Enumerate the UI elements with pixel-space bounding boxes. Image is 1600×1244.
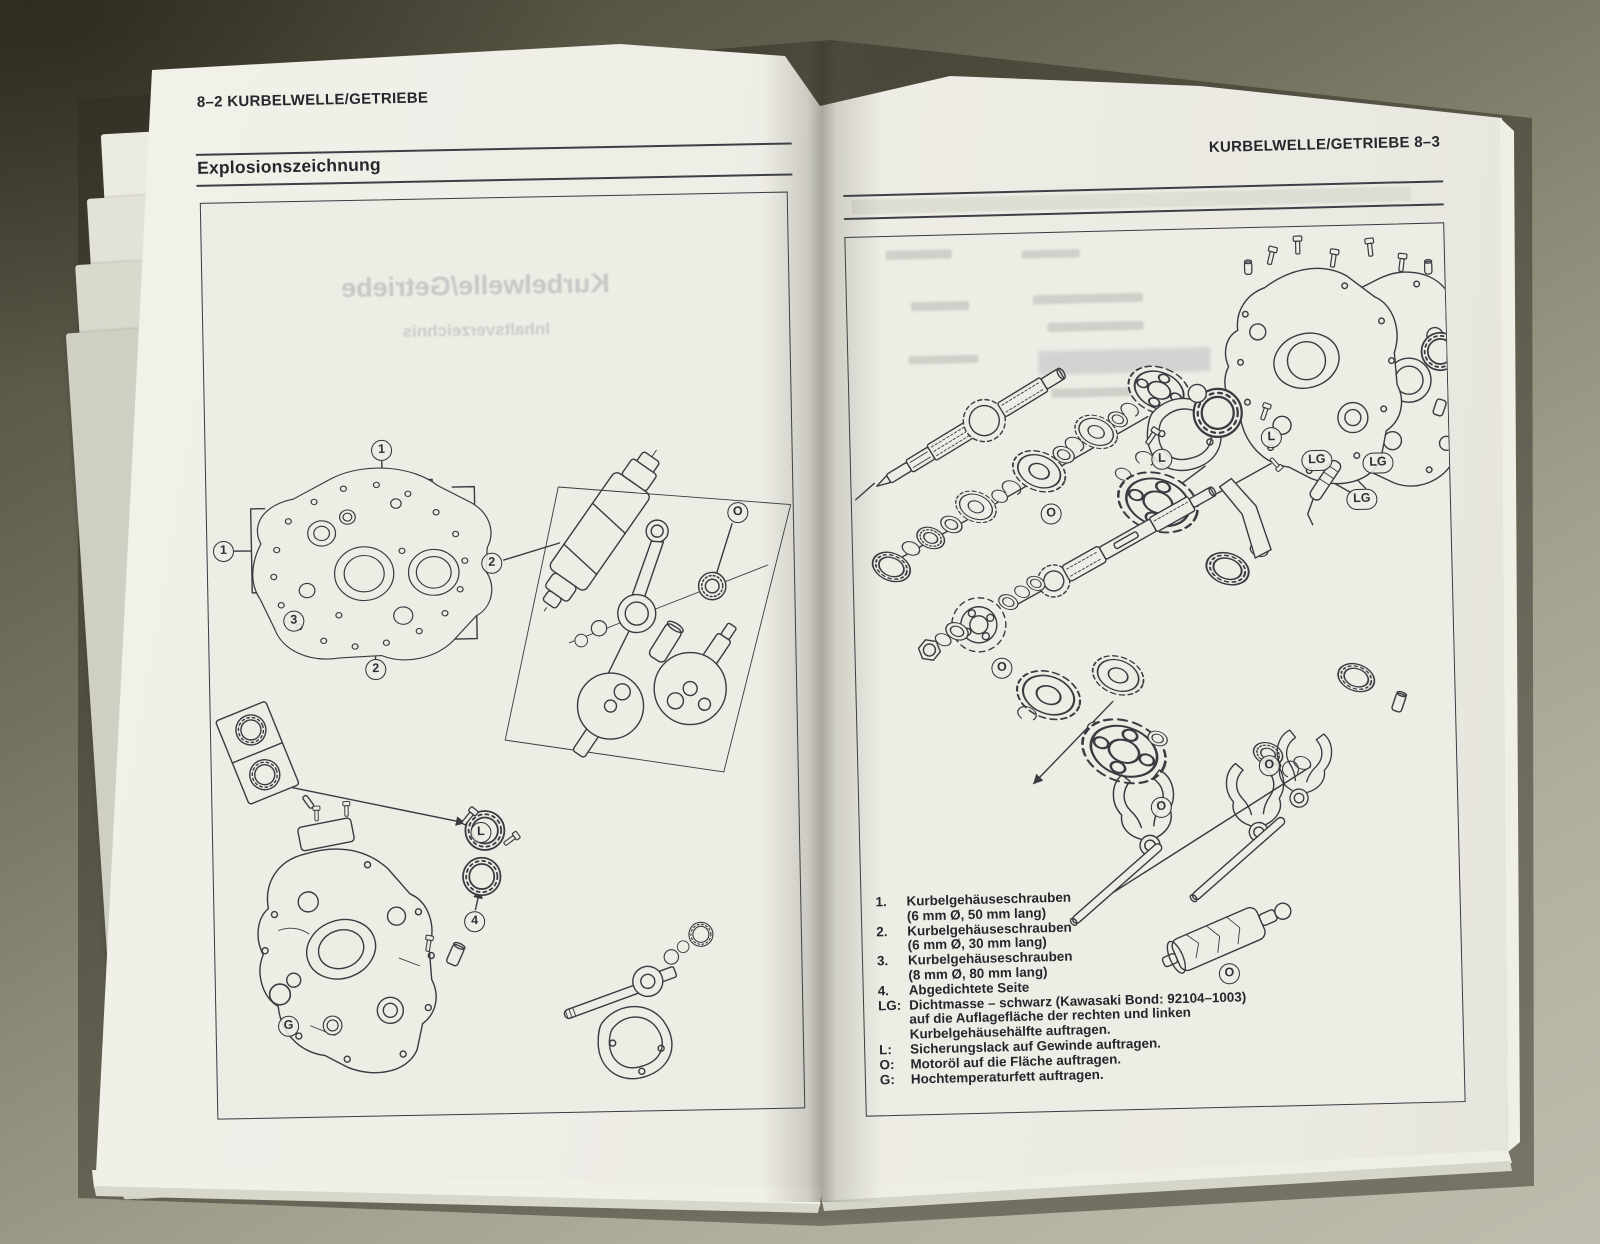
right-page-header: KURBELWELLE/GETRIEBE 8–3: [1209, 133, 1441, 156]
legend-key: O:: [879, 1057, 910, 1073]
section-title: Explosionszeichnung: [197, 154, 381, 179]
left-page-header: 8–2 KURBELWELLE/GETRIEBE: [197, 89, 429, 110]
legend-key: L:: [879, 1043, 910, 1059]
legend-key: G:: [880, 1072, 911, 1088]
callout: LG: [1346, 489, 1378, 511]
left-page-content: 8–2 KURBELWELLE/GETRIEBE Explosionszeich…: [190, 46, 817, 1149]
legend-key: 2.: [876, 924, 907, 940]
legend-key: LG:: [878, 998, 909, 1014]
legend-key: 3.: [877, 954, 908, 970]
legend-key: [877, 939, 908, 955]
legend-key: [877, 969, 908, 985]
legend-key: 4.: [878, 983, 909, 999]
legend-key: 1.: [875, 895, 906, 911]
legend: 1.Kurbelgehäuseschrauben (6 mm Ø, 50 mm …: [875, 886, 1252, 1087]
left-exploded-diagram: [201, 193, 804, 1119]
callout: LG: [1301, 450, 1333, 472]
right-page-content: KURBELWELLE/GETRIEBE 8–3: [842, 127, 1466, 1145]
photo-of-open-manual: { "colors": { "table_dark": "#514e3e", "…: [0, 0, 1600, 1244]
legend-key: [878, 1013, 909, 1029]
left-diagram-frame: Kurbelwelle/Getriebe Inhaltsverzeichnis: [200, 192, 805, 1120]
right-diagram-frame: L LG LG LG L O O O O O 1.Kurbelgehäusesc…: [844, 222, 1465, 1116]
legend-key: [879, 1028, 910, 1044]
callout: LG: [1362, 452, 1394, 474]
legend-key: [876, 909, 907, 925]
heading-rule: [196, 142, 792, 155]
